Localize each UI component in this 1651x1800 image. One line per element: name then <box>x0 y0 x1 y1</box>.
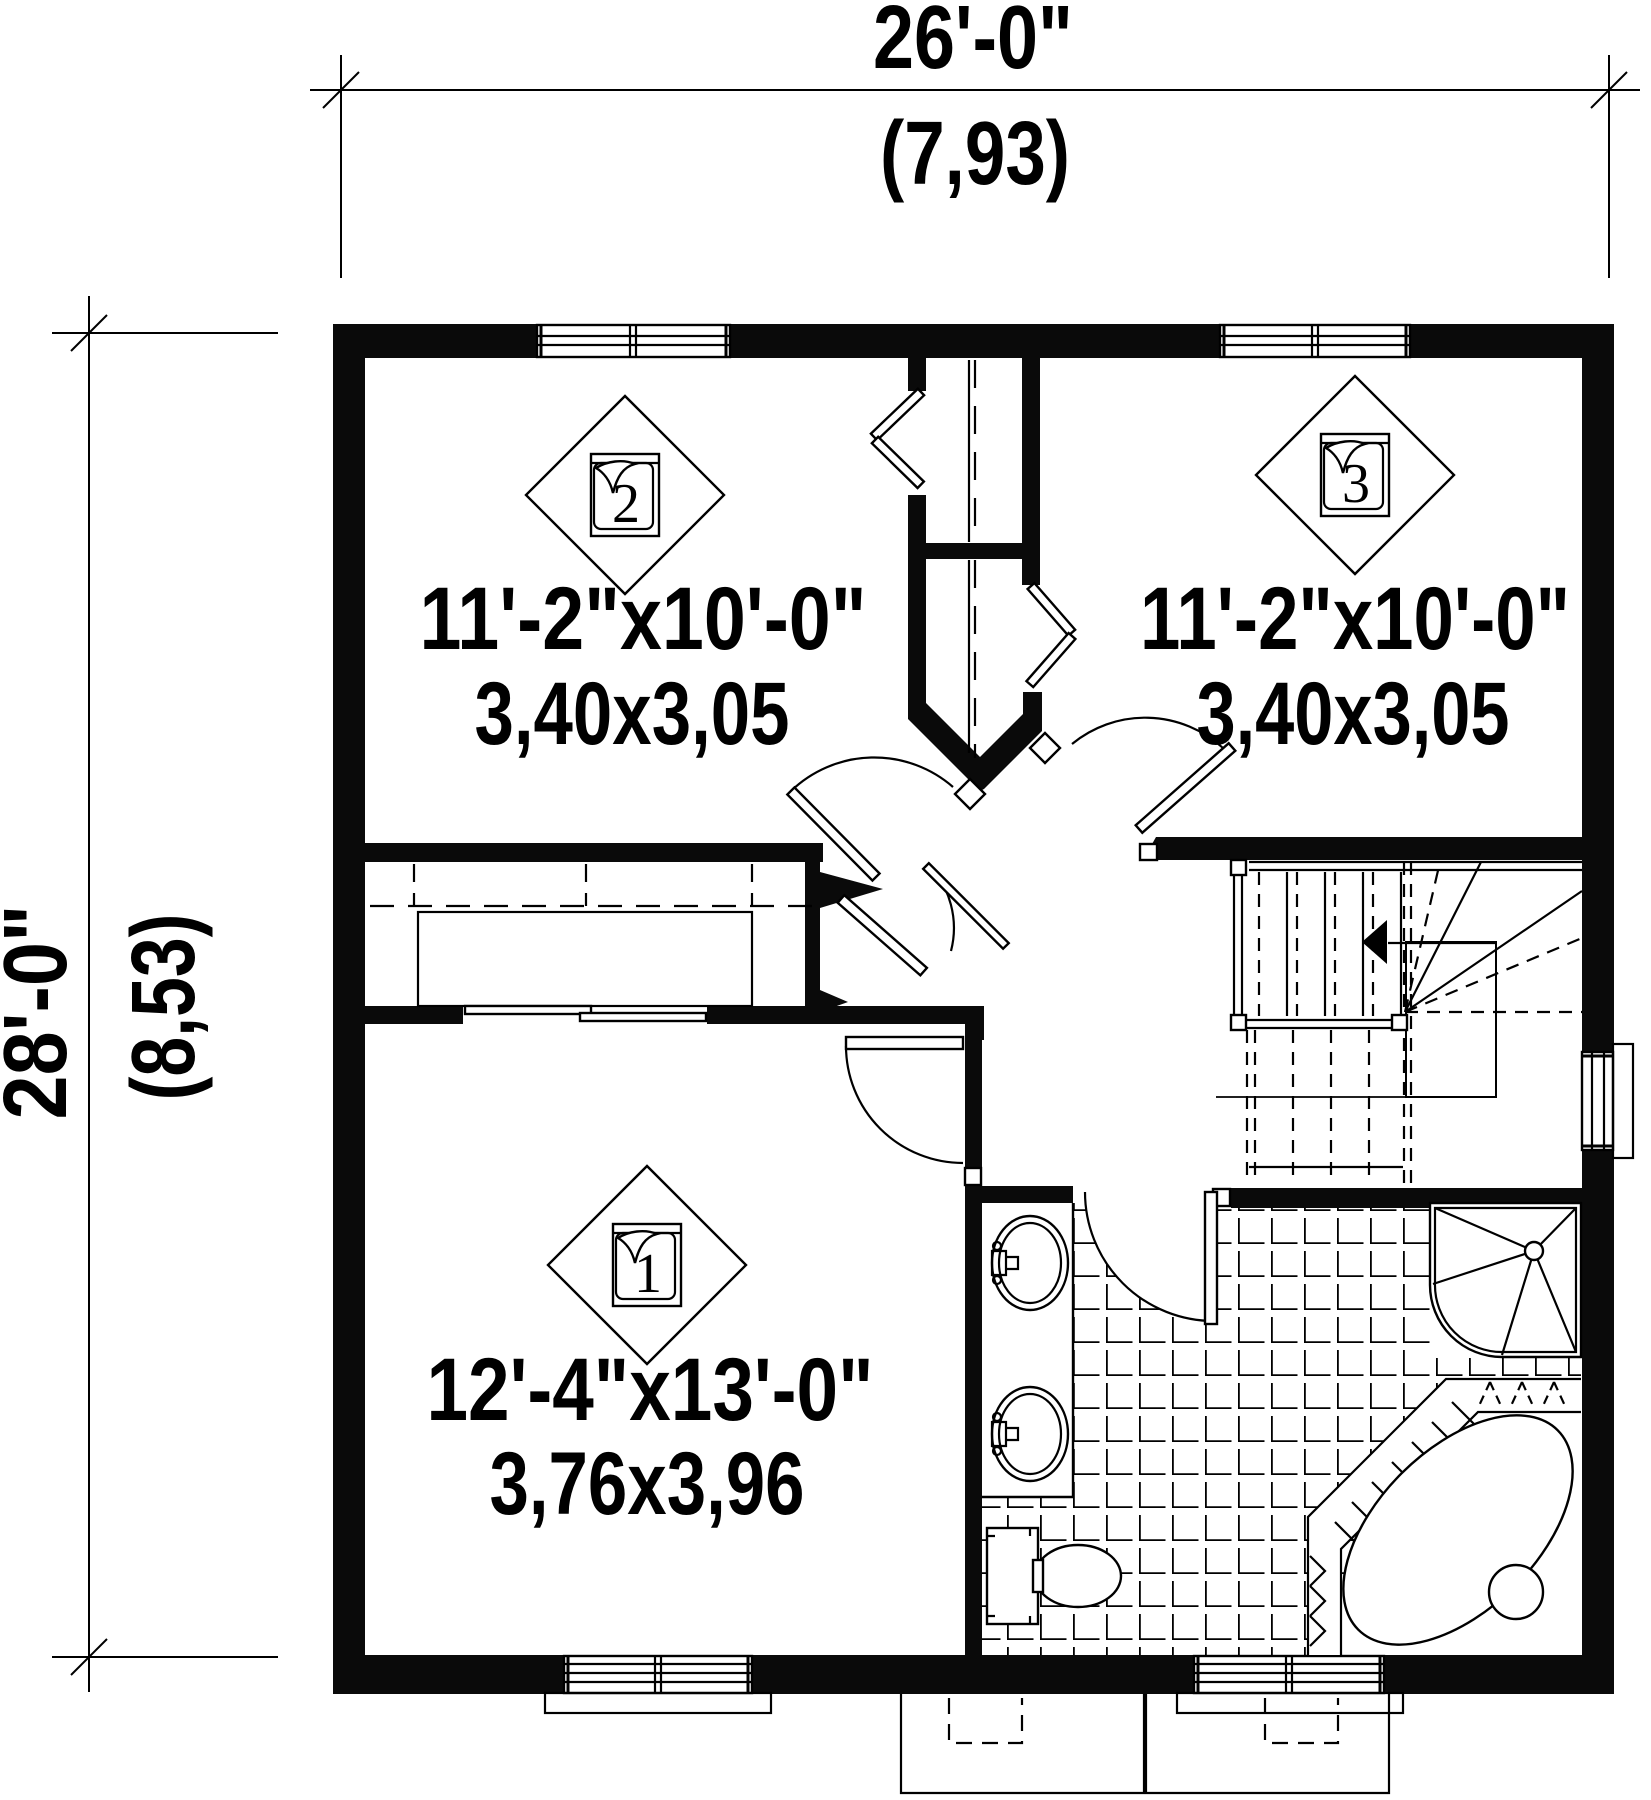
svg-text:3,40x3,05: 3,40x3,05 <box>1197 663 1510 763</box>
svg-text:3,40x3,05: 3,40x3,05 <box>475 663 790 763</box>
svg-text:3: 3 <box>1342 453 1370 515</box>
svg-text:2: 2 <box>612 473 640 535</box>
svg-text:11'-2"x10'-0": 11'-2"x10'-0" <box>420 568 867 668</box>
svg-text:26'-0": 26'-0" <box>873 0 1073 88</box>
svg-text:(8,53): (8,53) <box>114 914 214 1101</box>
svg-text:1: 1 <box>634 1243 662 1305</box>
svg-text:12'-4"x13'-0": 12'-4"x13'-0" <box>427 1339 874 1439</box>
svg-text:3,76x3,96: 3,76x3,96 <box>490 1433 805 1533</box>
svg-text:11'-2"x10'-0": 11'-2"x10'-0" <box>1140 568 1570 668</box>
svg-text:(7,93): (7,93) <box>880 104 1070 204</box>
svg-text:28'-0": 28'-0" <box>0 905 86 1120</box>
